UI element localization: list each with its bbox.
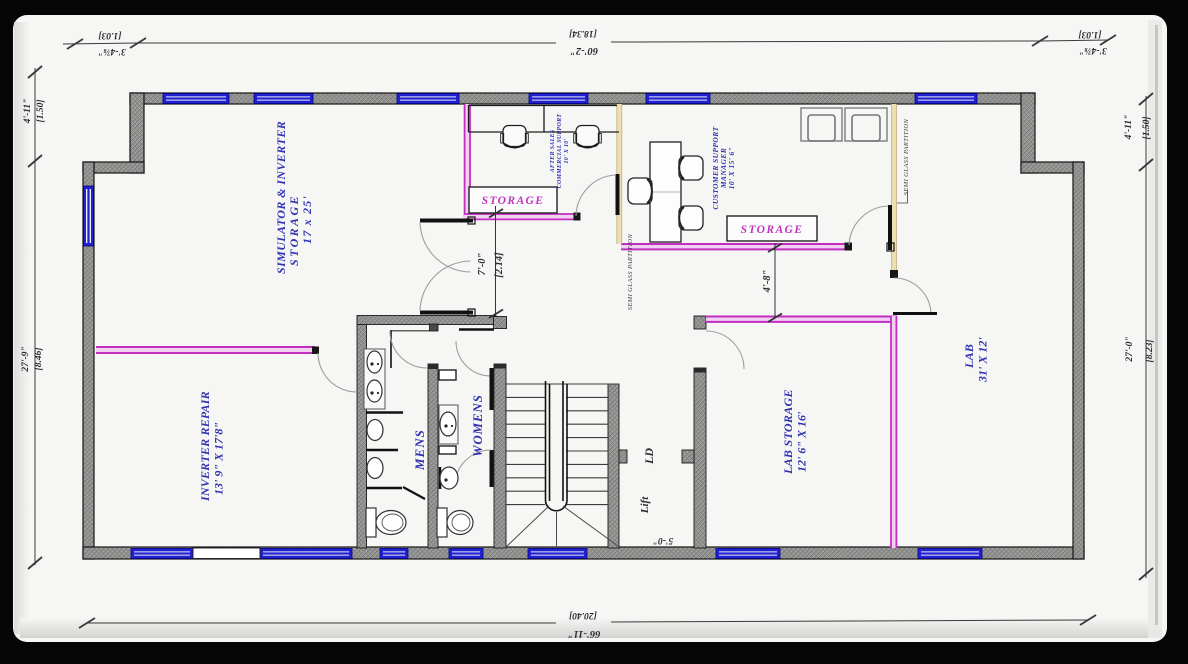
svg-text:4'-8": 4'-8" bbox=[762, 269, 773, 293]
svg-text:[1.03]: [1.03] bbox=[99, 30, 122, 40]
svg-text:STORAGE: STORAGE bbox=[482, 195, 545, 207]
svg-text:27'-9": 27'-9" bbox=[21, 346, 31, 372]
svg-text:3'-4⅞": 3'-4⅞" bbox=[98, 46, 127, 56]
svg-text:WOMENS: WOMENS bbox=[470, 394, 485, 457]
svg-text:[1.03]: [1.03] bbox=[1079, 29, 1102, 39]
svg-text:3'-4⅞": 3'-4⅞" bbox=[1079, 45, 1108, 55]
svg-text:MENS: MENS bbox=[412, 429, 427, 471]
svg-text:[18.34]: [18.34] bbox=[569, 28, 597, 38]
svg-text:STORAGE: STORAGE bbox=[741, 224, 804, 236]
svg-text:SEMI GLASS PARTITION: SEMI GLASS PARTITION bbox=[627, 233, 634, 310]
svg-text:[1.50]: [1.50] bbox=[36, 100, 46, 123]
svg-text:4'-11": 4'-11" bbox=[1124, 115, 1134, 141]
svg-text:[20.40]: [20.40] bbox=[569, 610, 597, 620]
svg-text:SEMI GLASS PARTITION: SEMI GLASS PARTITION bbox=[903, 118, 910, 195]
svg-text:5'-0": 5'-0" bbox=[653, 535, 674, 545]
svg-text:Lift: Lift bbox=[639, 496, 651, 514]
svg-text:[1.50]: [1.50] bbox=[1142, 117, 1152, 140]
svg-text:LD: LD bbox=[642, 448, 656, 465]
svg-text:4'-11": 4'-11" bbox=[23, 99, 33, 125]
svg-text:7'-0": 7'-0" bbox=[477, 252, 488, 275]
svg-text:[8.46]: [8.46] bbox=[34, 348, 44, 371]
svg-text:66'-11": 66'-11" bbox=[568, 628, 601, 639]
svg-text:27'-0": 27'-0" bbox=[1125, 336, 1135, 362]
svg-text:[2.14]: [2.14] bbox=[494, 252, 505, 278]
svg-text:[8.23]: [8.23] bbox=[1145, 340, 1155, 363]
svg-text:60'-2": 60'-2" bbox=[570, 45, 598, 56]
